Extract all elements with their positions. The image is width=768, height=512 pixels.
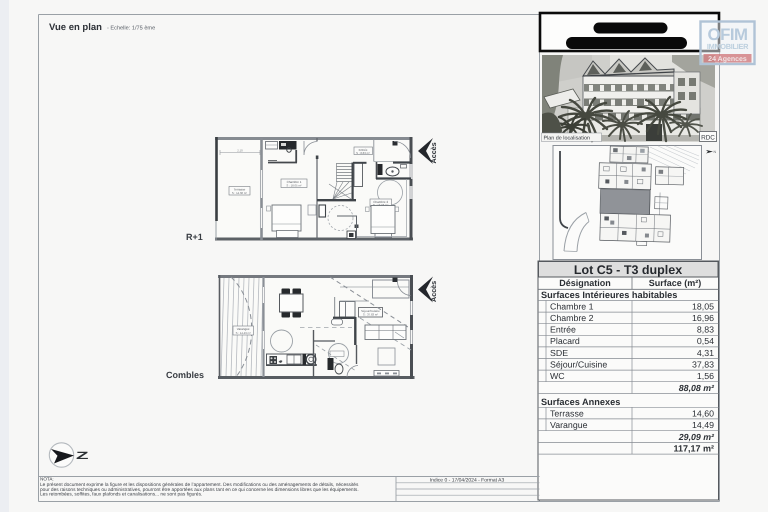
svg-text:88,08 m²: 88,08 m²	[679, 383, 715, 393]
svg-text:29,09 m²: 29,09 m²	[678, 432, 715, 442]
svg-text:Surfaces Annexes: Surfaces Annexes	[541, 397, 620, 407]
svg-text:37,83: 37,83	[692, 359, 714, 369]
svg-text:Varangue: Varangue	[550, 420, 588, 430]
svg-text:Indice 0 - 17/04/2024 - Format: Indice 0 - 17/04/2024 - Format A3	[430, 477, 505, 483]
svg-text:1,56: 1,56	[697, 371, 714, 381]
svg-text:Entrée: Entrée	[550, 325, 576, 335]
svg-text:Séjour/Cuisine: Séjour/Cuisine	[550, 359, 607, 369]
svg-text:Chambre 2: Chambre 2	[550, 313, 594, 323]
svg-text:Les retombées, soffites, faux: Les retombées, soffites, faux plafonds e…	[40, 492, 202, 498]
svg-text:8,83: 8,83	[697, 325, 714, 335]
svg-text:WC: WC	[550, 371, 565, 381]
svg-text:Chambre 1: Chambre 1	[550, 301, 594, 311]
svg-text:Surface (m²): Surface (m²)	[649, 278, 702, 288]
svg-text:16,96: 16,96	[692, 313, 714, 323]
svg-text:Désignation: Désignation	[559, 278, 611, 288]
svg-text:0,54: 0,54	[697, 336, 714, 346]
svg-text:SDE: SDE	[550, 348, 568, 358]
svg-text:14,60: 14,60	[692, 408, 714, 418]
svg-text:4,31: 4,31	[697, 348, 714, 358]
svg-text:Surfaces Intérieures habitable: Surfaces Intérieures habitables	[541, 290, 677, 300]
svg-text:18,05: 18,05	[692, 301, 714, 311]
svg-text:14,49: 14,49	[692, 420, 714, 430]
svg-text:117,17 m²: 117,17 m²	[673, 444, 714, 454]
svg-text:Placard: Placard	[550, 336, 580, 346]
svg-text:Lot C5 - T3 duplex: Lot C5 - T3 duplex	[574, 263, 682, 277]
svg-text:Z: Z	[76, 450, 90, 462]
svg-text:Terrasse: Terrasse	[550, 408, 584, 418]
svg-text:NOTA:: NOTA:	[40, 477, 54, 482]
